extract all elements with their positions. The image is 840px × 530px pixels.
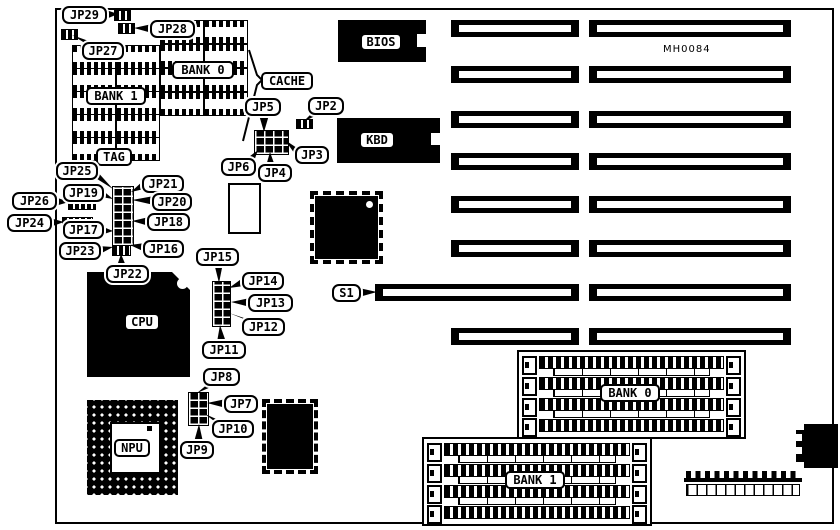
callout-jp26: JP26 <box>12 192 57 210</box>
callout-jp13: JP13 <box>248 294 293 312</box>
callout-jp4: JP4 <box>258 164 292 182</box>
callout-jp15: JP15 <box>196 248 239 266</box>
motherboard-diagram: BIOS KBD MH0084 BANK 0 BANK 1 TAG CACHE <box>0 0 840 530</box>
callout-jp12: JP12 <box>242 318 285 336</box>
cache-bank0-label: BANK 0 <box>172 61 234 79</box>
callout-jp21: JP21 <box>142 175 184 193</box>
tag-ram-label: TAG <box>96 148 132 166</box>
cpu-chip-label: CPU <box>124 313 160 331</box>
cache-label: CACHE <box>261 72 313 90</box>
callout-jp20: JP20 <box>152 193 192 211</box>
callout-jp22: JP22 <box>106 265 149 283</box>
callout-jp8: JP8 <box>203 368 240 386</box>
callout-jp24: JP24 <box>7 214 52 232</box>
kbd-chip-label: KBD <box>359 131 395 149</box>
npu-pin1-dot <box>147 426 152 431</box>
simm-bank0-label: BANK 0 <box>600 384 660 402</box>
simm-bank1-label: BANK 1 <box>505 471 565 489</box>
callout-jp5: JP5 <box>245 98 281 116</box>
callout-jp9: JP9 <box>180 441 214 459</box>
callout-s1: S1 <box>332 284 361 302</box>
callout-jp7: JP7 <box>224 395 258 413</box>
callout-jp16: JP16 <box>143 240 184 258</box>
callout-jp3: JP3 <box>295 146 329 164</box>
callout-jp29: JP29 <box>62 6 107 24</box>
callout-jp10: JP10 <box>212 420 254 438</box>
cache-bank1-label: BANK 1 <box>86 87 146 105</box>
npu-label: NPU <box>114 439 150 457</box>
callout-jp28: JP28 <box>150 20 195 38</box>
callout-jp27: JP27 <box>82 42 124 60</box>
callout-jp25: JP25 <box>56 162 98 180</box>
callout-jp19: JP19 <box>63 184 104 202</box>
callout-jp18: JP18 <box>147 213 190 231</box>
bios-chip-label: BIOS <box>360 33 402 51</box>
callout-jp14: JP14 <box>242 272 284 290</box>
callout-jp6: JP6 <box>221 158 256 176</box>
callout-jp17: JP17 <box>63 221 104 239</box>
callout-jp23: JP23 <box>59 242 101 260</box>
callout-jp11: JP11 <box>202 341 246 359</box>
callout-jp2: JP2 <box>308 97 344 115</box>
